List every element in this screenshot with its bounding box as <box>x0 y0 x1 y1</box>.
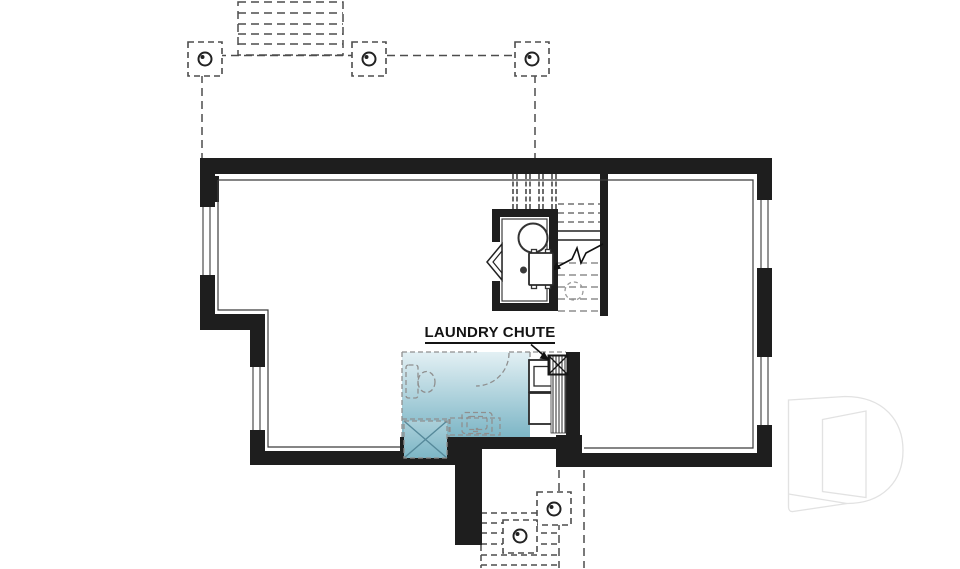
stair-wall <box>600 172 608 316</box>
deck-stairs-above <box>238 2 343 55</box>
shower-icon <box>404 421 447 458</box>
bifold-door-icon <box>487 244 502 280</box>
deck-post <box>515 42 549 76</box>
window <box>249 367 266 430</box>
floor-plan-page: { "annotations": { "laundry_chute": { "t… <box>0 0 960 569</box>
sump-circle <box>565 282 583 300</box>
window <box>199 207 216 275</box>
deck-post <box>188 42 222 76</box>
watermark-logo <box>789 397 904 512</box>
water-heater-icon <box>519 224 548 253</box>
stair-break-arrow <box>555 244 603 268</box>
laundry-chute-hatch <box>549 356 568 375</box>
main-stairs <box>551 204 603 311</box>
floor-plan-drawing <box>0 0 960 569</box>
deck-post <box>537 492 571 525</box>
upper-stair-flight <box>513 174 556 209</box>
floor-drain-icon <box>520 267 527 274</box>
deck-above-outline <box>188 2 549 158</box>
laundry-chute-label-text: LAUNDRY CHUTE <box>425 324 556 344</box>
exterior-walls <box>200 158 772 545</box>
deck-post <box>352 42 386 76</box>
laundry-chute-label: LAUNDRY CHUTE <box>421 324 559 341</box>
chase-hatch <box>551 373 566 433</box>
window <box>756 357 773 425</box>
deck-post <box>503 520 537 553</box>
window <box>756 200 773 268</box>
furnace-icon <box>529 250 553 289</box>
walkout-stairs-below <box>481 470 584 568</box>
